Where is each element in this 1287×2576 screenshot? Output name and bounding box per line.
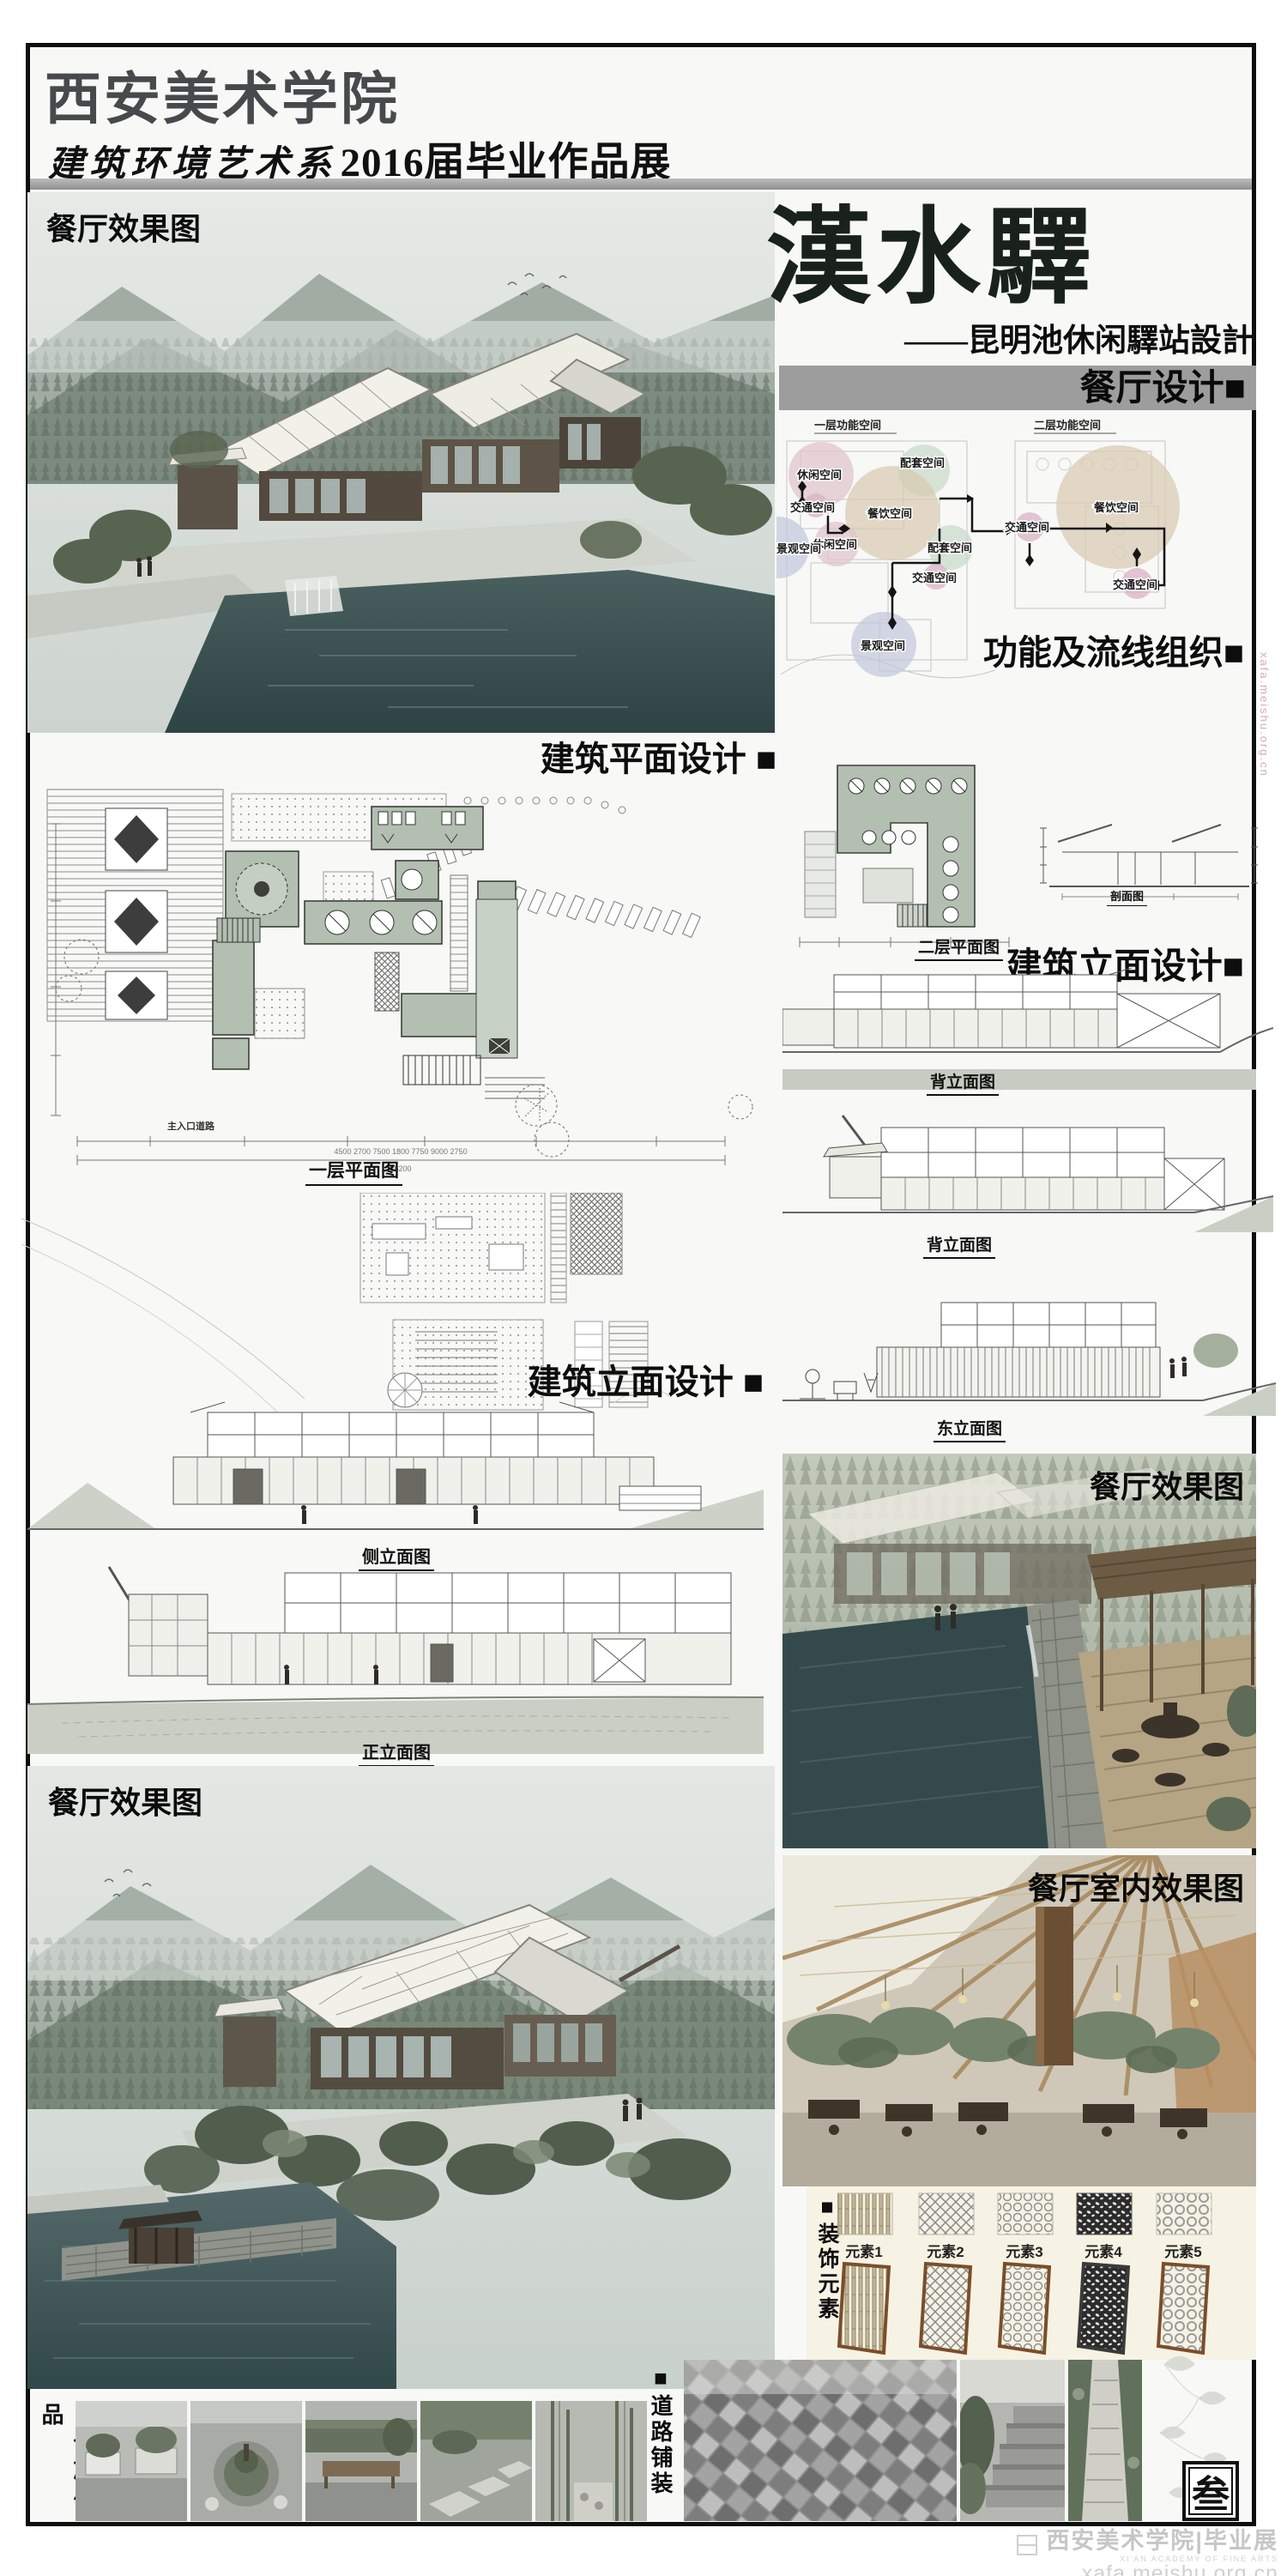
project-title: 漢水驛	[766, 204, 1096, 314]
decor-section: ■装饰元素 元素1 元素2 元素3 元素4 元素5	[807, 2186, 1256, 2360]
floor-plan-1-svg: 4500 2700 7500 1800 7750 9000 2750 36200…	[21, 772, 776, 1184]
svg-text:交通空间: 交通空间	[912, 571, 957, 584]
elevation-right-2-svg	[782, 1114, 1273, 1232]
hero-render: 餐厅效果图	[27, 192, 775, 733]
bottom-render-image	[27, 1766, 775, 2389]
section-drawing-caption: 剖面图	[1107, 887, 1147, 906]
bottom-render: 餐厅效果图	[27, 1766, 775, 2389]
svg-text:餐饮空间: 餐饮空间	[1093, 501, 1139, 514]
plan-dims: 4500 2700 7500 1800 7750 9000 2750	[334, 1147, 467, 1156]
elevation-right-1-svg	[782, 968, 1273, 1069]
section-bar-canteen-design: 餐厅设计■	[779, 366, 1256, 410]
floor-plan-2	[788, 759, 1021, 952]
facility-photo-1	[76, 2401, 187, 2521]
facility-photo-4	[420, 2401, 532, 2521]
right-render-image	[782, 1454, 1256, 1848]
elevation-left-2-caption: 正立面图	[359, 1738, 434, 1767]
fd-right-header: 二层功能空间	[1034, 419, 1101, 432]
section-drawing	[1036, 818, 1261, 910]
plan-entry-label: 主入口道路	[167, 1120, 215, 1132]
watermark-url: xafa.meishu.org.cn	[815, 2563, 1278, 2576]
elevation-right-3-caption: 东立面图	[934, 1416, 1006, 1442]
section-label-elevation-left: 建筑立面设计 ■	[468, 1354, 764, 1404]
svg-text:配套空间: 配套空间	[927, 541, 972, 554]
elevation-right-2-caption: 背立面图	[923, 1232, 995, 1259]
facility-photo-3	[305, 2401, 417, 2521]
watermark: 西安美术学院|毕业展 XI'AN ACADEMY OF FINE ARTS xa…	[815, 2530, 1278, 2576]
hero-render-label: 餐厅效果图	[46, 204, 201, 249]
floor-plan-1: 4500 2700 7500 1800 7750 9000 2750 36200…	[21, 772, 776, 1184]
svg-text:餐饮空间: 餐饮空间	[867, 507, 912, 520]
function-diagram-svg: 一层功能空间 二层功能空间	[776, 417, 1257, 702]
header-divider	[30, 178, 1252, 190]
elevation-right-1	[782, 968, 1273, 1069]
floor-plan-2-svg	[788, 759, 1021, 952]
pavilion	[118, 2210, 202, 2264]
svg-text:交通空间: 交通空间	[1005, 521, 1049, 534]
decor-item-label: 元素3	[990, 2240, 1059, 2261]
svg-text:配套空间: 配套空间	[900, 457, 945, 469]
paving-photo-1	[684, 2360, 957, 2521]
elevation-left-1-svg	[27, 1400, 764, 1548]
bottom-render-label: 餐厅效果图	[48, 1778, 202, 1823]
interior-render-label: 餐厅室内效果图	[1028, 1864, 1244, 1908]
paving-photo-2	[960, 2360, 1065, 2521]
elevation-right-3-svg	[782, 1297, 1276, 1416]
elevation-right-3	[782, 1297, 1276, 1416]
svg-text:交通空间: 交通空间	[1113, 578, 1157, 591]
paving-photo-3	[1068, 2360, 1142, 2521]
paving-section-label: ■道路铺装	[645, 2365, 677, 2519]
school-title: 西安美术学院	[45, 53, 400, 136]
svg-text:景观空间: 景观空间	[776, 542, 821, 555]
project-subtitle: ——昆明池休闲驛站設計	[776, 314, 1254, 360]
svg-text:交通空间: 交通空间	[790, 501, 835, 514]
decor-swatches	[837, 2192, 1251, 2236]
watermark-brand: 西安美术学院|毕业展	[1046, 2528, 1278, 2554]
elevation-left-2	[27, 1560, 764, 1754]
section-drawing-svg	[1036, 818, 1261, 910]
right-render-label: 餐厅效果图	[1090, 1462, 1244, 1507]
svg-text:景观空间: 景观空间	[861, 639, 905, 652]
facility-photo-2	[190, 2401, 302, 2521]
page-seal-char: 叁	[1188, 2467, 1233, 2515]
elevation-right-1-caption: 背立面图	[927, 1069, 999, 1096]
street-furniture-sketch	[800, 1370, 878, 1400]
poster-board: 西安美术学院 建筑环境艺术系 2016届毕业作品展	[0, 0, 1287, 2576]
decor-item-label: 元素5	[1149, 2240, 1218, 2261]
elevation-left-2-svg	[27, 1560, 764, 1754]
hero-render-image	[27, 192, 775, 733]
elevation-right-1-band	[782, 1069, 1256, 1090]
side-watermark: xafa.meishu.org.cn	[1258, 652, 1271, 777]
fd-left-header: 一层功能空间	[814, 419, 881, 432]
svg-text:休闲空间: 休闲空间	[796, 469, 842, 481]
right-render: 餐厅效果图	[782, 1454, 1256, 1848]
page-seal: 叁	[1182, 2461, 1239, 2521]
decor-item-label: 元素4	[1069, 2240, 1138, 2261]
watermark-logo-icon	[1017, 2535, 1037, 2555]
fd-caption: 功能及流线组织■	[983, 634, 1244, 672]
interior-render: 餐厅室内效果图	[782, 1855, 1256, 2186]
elevation-left-1	[27, 1400, 764, 1548]
decor-item-label: 元素2	[911, 2240, 980, 2261]
facility-photo-5	[535, 2401, 647, 2521]
floor-plan-1-caption: 一层平面图	[305, 1157, 402, 1186]
decor-item-label: 元素1	[830, 2240, 898, 2261]
function-diagram: 一层功能空间 二层功能空间	[776, 417, 1257, 702]
elevation-right-2	[782, 1114, 1273, 1232]
